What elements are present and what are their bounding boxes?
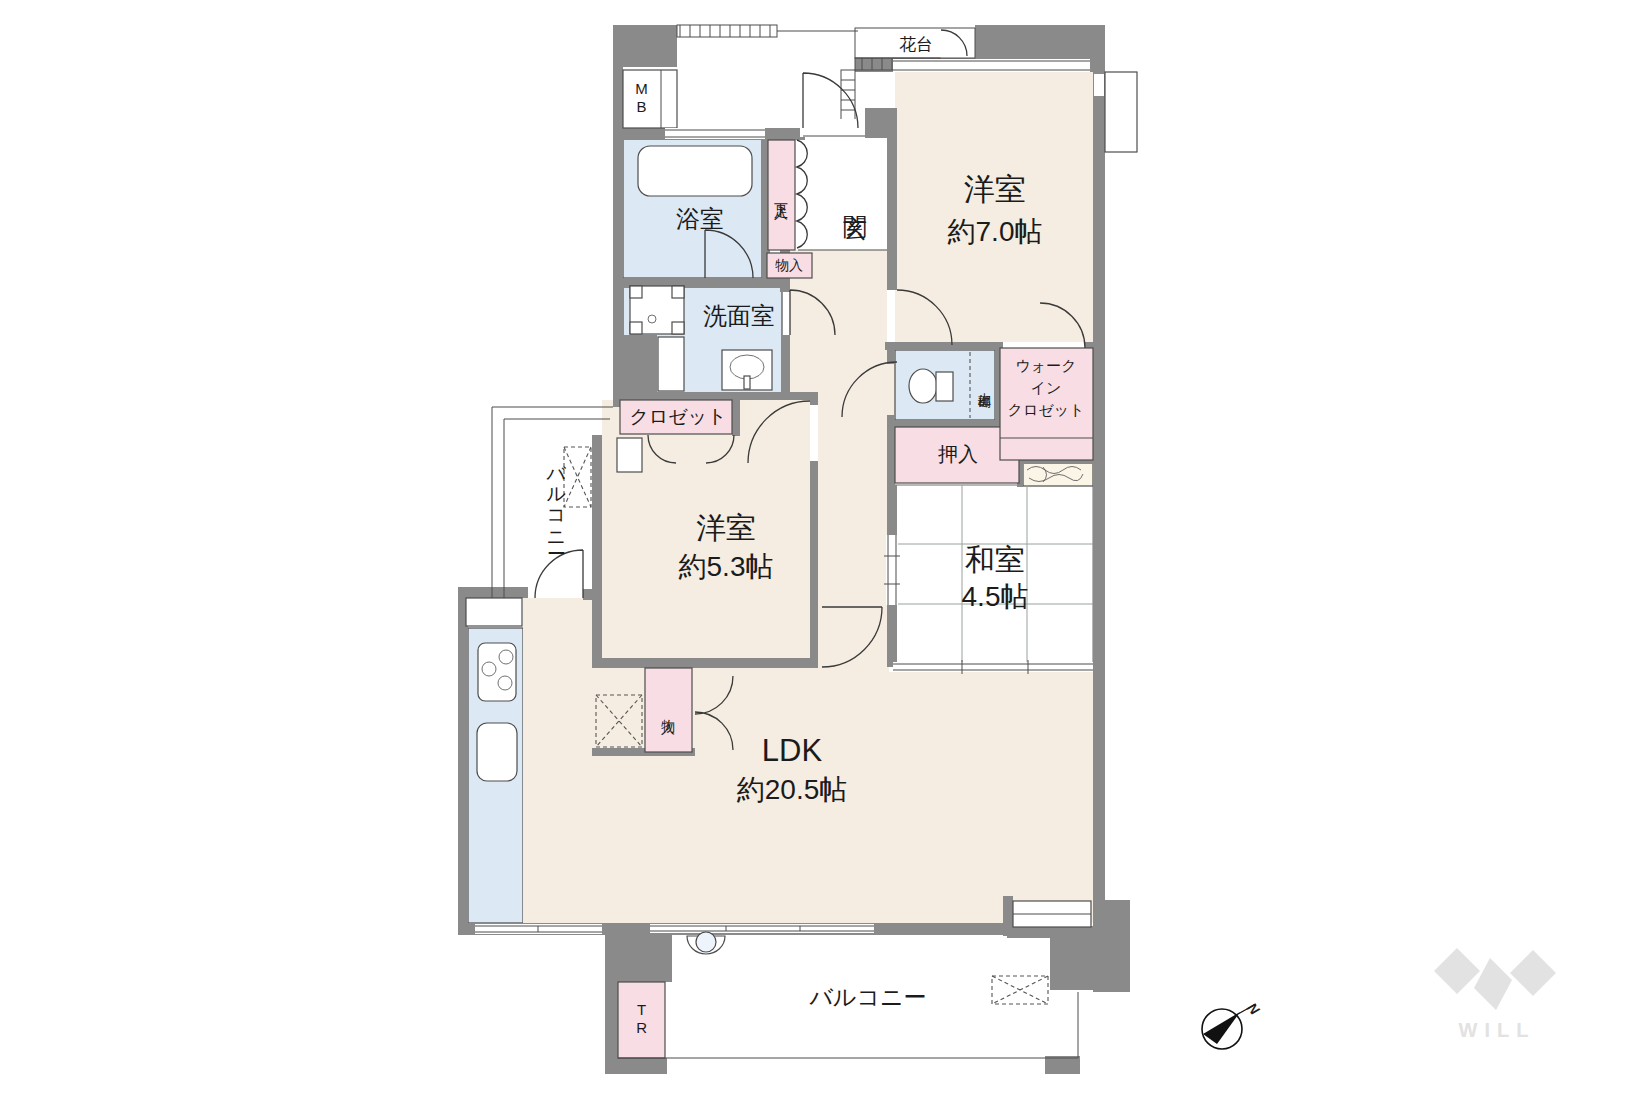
floor-ldk: [889, 672, 1093, 923]
washbasin: [722, 350, 772, 390]
compass-icon: [1202, 1004, 1256, 1049]
partition-board: [1105, 72, 1137, 152]
floor-west-room-7: [895, 72, 1093, 342]
closet-box: [620, 400, 732, 434]
balcony-south-equipment: [992, 976, 1048, 1004]
trunk-room-box: [618, 982, 665, 1058]
floor-tatami-room: [895, 485, 1093, 665]
balcony-west-equipment: [564, 447, 591, 507]
meter-box: [623, 70, 677, 128]
tatami-grid: [897, 485, 1093, 663]
open-corridor: [677, 25, 858, 37]
floor-plan-drawing: [0, 0, 1639, 1093]
vanity-counter: [658, 337, 684, 391]
washing-machine: [630, 286, 684, 334]
kitchen-counter: [466, 598, 522, 626]
utility-box: [617, 438, 642, 472]
kitchen-sink: [477, 723, 517, 781]
kitchen-stove: [478, 643, 516, 701]
floor-plan: 洋室 約7.0帖 花台 MB 玄関 下足入 浴室 物入 洗面室 クロゼット 上部…: [0, 0, 1639, 1093]
brand-logo-icon: [1434, 948, 1556, 1010]
bathtub: [638, 146, 752, 196]
ldk-storage-box: [645, 668, 692, 752]
balcony-door: [535, 550, 583, 598]
floor-wood-board: [1023, 462, 1093, 486]
floor-hall-lower: [818, 397, 889, 923]
walk-in-closet-box: [1000, 348, 1093, 460]
floor-genkan: [800, 138, 887, 250]
shoe-box: [768, 140, 795, 250]
balcony-faucet: [687, 932, 725, 954]
hall-storage-box: [767, 253, 812, 278]
